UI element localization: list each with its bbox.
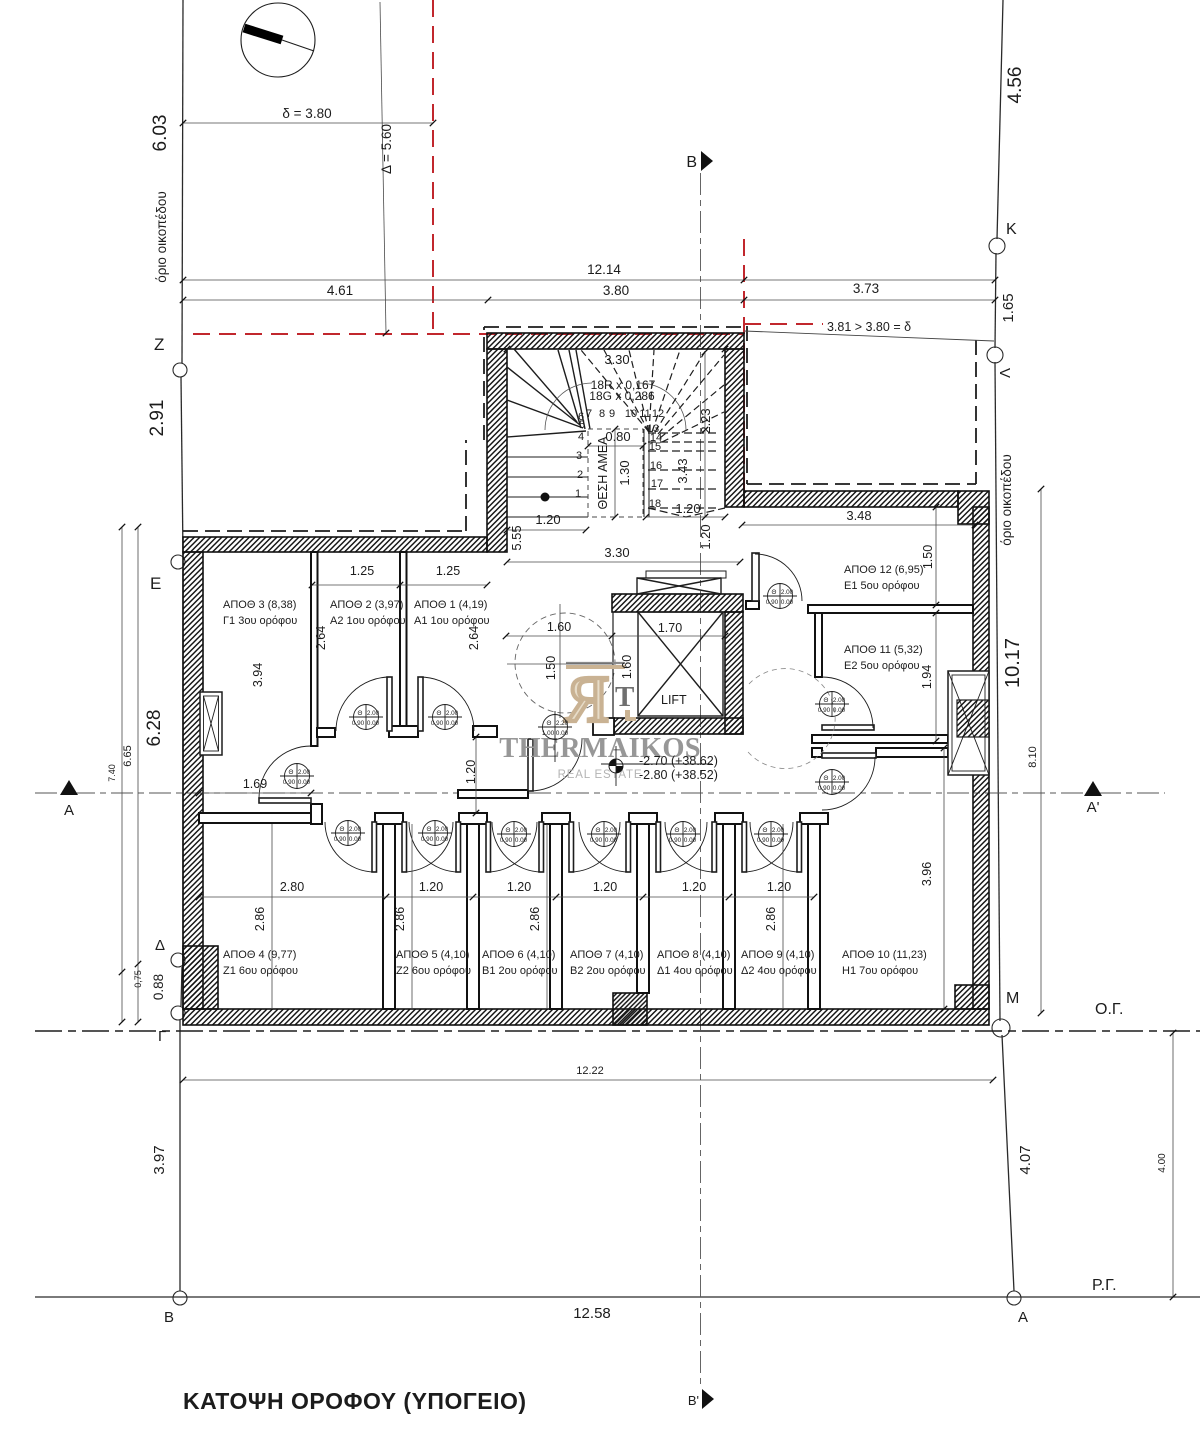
- svg-text:3: 3: [576, 450, 582, 462]
- svg-text:Θ: Θ: [437, 710, 442, 717]
- svg-text:0.90: 0.90: [421, 836, 434, 843]
- svg-text:ΑΠΟΘ 1 (4,19): ΑΠΟΘ 1 (4,19): [414, 599, 487, 611]
- svg-text:Δ2 4ου ορόφου: Δ2 4ου ορόφου: [741, 965, 817, 977]
- svg-text:Λ: Λ: [997, 368, 1014, 378]
- svg-text:Δ = 5.60: Δ = 5.60: [379, 124, 394, 174]
- svg-text:Β1 2ου ορόφου: Β1 2ου ορόφου: [482, 965, 558, 977]
- svg-text:Θ: Θ: [824, 775, 829, 782]
- svg-text:1.20: 1.20: [593, 880, 617, 894]
- svg-text:0,75: 0,75: [133, 970, 143, 988]
- svg-text:0.90: 0.90: [766, 599, 779, 606]
- svg-text:-2.70 (+38.62): -2.70 (+38.62): [639, 754, 718, 768]
- svg-text:0.00: 0.00: [772, 837, 785, 844]
- svg-text:7.40: 7.40: [107, 764, 117, 782]
- svg-text:0.00: 0.00: [684, 837, 697, 844]
- svg-text:3.30: 3.30: [604, 545, 629, 560]
- svg-text:4.07: 4.07: [1017, 1145, 1034, 1174]
- svg-text:0.00: 0.00: [436, 836, 449, 843]
- svg-text:Ζ2 6ου ορόφου: Ζ2 6ου ορόφου: [396, 965, 471, 977]
- svg-text:1.60: 1.60: [620, 655, 634, 679]
- svg-text:2.91: 2.91: [147, 400, 168, 437]
- svg-text:ΑΠΟΘ 6 (4,10): ΑΠΟΘ 6 (4,10): [482, 949, 555, 961]
- svg-text:0.00: 0.00: [298, 779, 311, 786]
- svg-text:4: 4: [578, 431, 584, 443]
- svg-text:Ρ.Γ.: Ρ.Γ.: [1092, 1277, 1117, 1294]
- svg-text:7: 7: [586, 408, 592, 420]
- svg-text:0.00: 0.00: [515, 837, 528, 844]
- svg-text:ΑΠΟΘ 2 (3,97): ΑΠΟΘ 2 (3,97): [330, 599, 403, 611]
- svg-text:0.90: 0.90: [669, 837, 682, 844]
- svg-text:6: 6: [578, 411, 584, 423]
- svg-text:E: E: [150, 574, 161, 593]
- svg-text:1.69: 1.69: [243, 777, 267, 791]
- svg-text:Θ: Θ: [596, 827, 601, 834]
- svg-text:0.90: 0.90: [352, 720, 365, 727]
- svg-text:10: 10: [625, 408, 637, 420]
- svg-text:0.90: 0.90: [818, 707, 831, 714]
- svg-text:3.97: 3.97: [151, 1145, 168, 1174]
- svg-text:ΑΠΟΘ 10 (11,23): ΑΠΟΘ 10 (11,23): [842, 949, 927, 961]
- svg-text:2.00: 2.00: [833, 697, 846, 704]
- svg-text:1.20: 1.20: [419, 880, 443, 894]
- svg-text:2.00: 2.00: [833, 775, 846, 782]
- svg-text:1.20: 1.20: [464, 760, 478, 784]
- svg-text:1.50: 1.50: [544, 656, 558, 680]
- svg-text:Δ1 4ου ορόφου: Δ1 4ου ορόφου: [657, 965, 733, 977]
- svg-text:όριο οικοπέδου: όριο οικοπέδου: [154, 191, 169, 283]
- svg-text:B: B: [686, 154, 697, 171]
- svg-text:1.20: 1.20: [767, 880, 791, 894]
- svg-text:A': A': [1087, 799, 1100, 816]
- svg-text:1.00: 1.00: [542, 730, 555, 737]
- svg-text:3.43: 3.43: [675, 458, 690, 483]
- svg-text:2.00: 2.00: [349, 826, 362, 833]
- svg-text:15: 15: [649, 441, 661, 453]
- svg-text:0.90: 0.90: [431, 720, 444, 727]
- svg-text:LIFT: LIFT: [661, 693, 687, 707]
- svg-text:1: 1: [575, 488, 581, 500]
- svg-text:1.20: 1.20: [682, 880, 706, 894]
- svg-text:1.94: 1.94: [920, 665, 934, 689]
- svg-text:0.90: 0.90: [334, 836, 347, 843]
- svg-text:1.60: 1.60: [547, 620, 571, 634]
- svg-text:4.00: 4.00: [1157, 1153, 1168, 1173]
- svg-text:-2.80 (+38.52): -2.80 (+38.52): [639, 768, 718, 782]
- svg-text:2.00: 2.00: [446, 710, 459, 717]
- svg-text:8: 8: [599, 408, 605, 420]
- svg-text:1.20: 1.20: [675, 501, 700, 516]
- svg-text:2.00: 2.00: [772, 827, 785, 834]
- svg-text:ΑΠΟΘ 4 (9,77): ΑΠΟΘ 4 (9,77): [223, 949, 296, 961]
- svg-text:T: T: [615, 681, 634, 713]
- svg-text:5.55: 5.55: [509, 525, 524, 550]
- svg-text:16: 16: [650, 460, 662, 472]
- svg-text:11: 11: [639, 408, 650, 420]
- svg-text:2.00: 2.00: [298, 769, 311, 776]
- svg-text:0.00: 0.00: [556, 730, 569, 737]
- svg-text:0.00: 0.00: [781, 599, 794, 606]
- svg-text:2.80: 2.80: [280, 880, 304, 894]
- svg-text:Θ: Θ: [763, 827, 768, 834]
- svg-text:0.00: 0.00: [833, 707, 846, 714]
- svg-text:2.86: 2.86: [393, 907, 407, 931]
- svg-text:9: 9: [609, 408, 615, 420]
- svg-text:1.20: 1.20: [535, 512, 560, 527]
- svg-text:0.90: 0.90: [757, 837, 770, 844]
- svg-text:0.90: 0.90: [500, 837, 513, 844]
- svg-text:2.00: 2.00: [515, 827, 528, 834]
- svg-text:2.86: 2.86: [528, 907, 542, 931]
- svg-text:Γ: Γ: [158, 1028, 166, 1045]
- svg-text:1.25: 1.25: [350, 564, 374, 578]
- svg-text:1.65: 1.65: [1000, 293, 1017, 322]
- svg-text:2.64: 2.64: [467, 626, 481, 650]
- svg-text:ΑΠΟΘ 9 (4,10): ΑΠΟΘ 9 (4,10): [741, 949, 814, 961]
- svg-text:2.23: 2.23: [698, 408, 713, 433]
- svg-text:REAL ESTATE: REAL ESTATE: [558, 769, 643, 781]
- svg-text:0.00: 0.00: [446, 720, 459, 727]
- svg-text:Γ1 3ου ορόφου: Γ1 3ου ορόφου: [223, 615, 297, 627]
- svg-text:Θ: Θ: [772, 589, 777, 596]
- svg-text:ΑΠΟΘ 5 (4,10): ΑΠΟΘ 5 (4,10): [396, 949, 469, 961]
- svg-text:Z: Z: [154, 335, 164, 354]
- svg-text:3.30: 3.30: [604, 352, 629, 367]
- svg-text:3.96: 3.96: [920, 862, 934, 886]
- svg-text:10.17: 10.17: [1002, 638, 1024, 688]
- svg-text:1.20: 1.20: [698, 524, 713, 549]
- svg-text:3.80: 3.80: [603, 283, 629, 298]
- svg-text:0.00: 0.00: [605, 837, 618, 844]
- svg-text:όριο οικοπέδου: όριο οικοπέδου: [999, 454, 1014, 546]
- svg-text:Ε2 5ου ορόφου: Ε2 5ου ορόφου: [844, 660, 920, 672]
- svg-text:Β': Β': [688, 1393, 699, 1408]
- svg-text:B: B: [164, 1309, 174, 1326]
- svg-text:Θ: Θ: [289, 769, 294, 776]
- svg-text:ΑΠΟΘ 11 (5,32): ΑΠΟΘ 11 (5,32): [844, 644, 923, 656]
- svg-text:0.00: 0.00: [367, 720, 380, 727]
- svg-text:2.86: 2.86: [764, 907, 778, 931]
- svg-text:0.90: 0.90: [818, 785, 831, 792]
- svg-text:A: A: [1018, 1309, 1028, 1326]
- svg-text:Θ: Θ: [547, 720, 552, 727]
- svg-text:Θ: Θ: [824, 697, 829, 704]
- svg-text:1.25: 1.25: [436, 564, 460, 578]
- svg-text:Η1 7ου ορόφου: Η1 7ου ορόφου: [842, 965, 918, 977]
- svg-text:6.03: 6.03: [150, 115, 171, 152]
- svg-text:Β2 2ου ορόφου: Β2 2ου ορόφου: [570, 965, 646, 977]
- svg-text:6.28: 6.28: [144, 710, 165, 747]
- svg-text:Θ: Θ: [427, 826, 432, 833]
- svg-text:δ = 3.80: δ = 3.80: [282, 106, 331, 121]
- svg-text:4.61: 4.61: [327, 283, 353, 298]
- svg-text:2: 2: [577, 469, 583, 481]
- svg-text:17: 17: [651, 478, 663, 490]
- svg-text:2.86: 2.86: [253, 907, 267, 931]
- svg-text:2.00: 2.00: [367, 710, 380, 717]
- svg-text:Θ: Θ: [340, 826, 345, 833]
- svg-text:18G x 0,286: 18G x 0,286: [589, 389, 655, 403]
- svg-text:12: 12: [652, 408, 664, 420]
- svg-text:2.00: 2.00: [684, 827, 697, 834]
- svg-text:2.00: 2.00: [781, 589, 794, 596]
- svg-text:0.90: 0.90: [590, 837, 603, 844]
- svg-text:6.65: 6.65: [122, 745, 134, 766]
- svg-text:18: 18: [649, 498, 661, 510]
- svg-text:Θ: Θ: [675, 827, 680, 834]
- svg-text:4.56: 4.56: [1005, 67, 1026, 104]
- svg-text:2.64: 2.64: [314, 626, 328, 650]
- svg-text:A: A: [64, 802, 74, 819]
- svg-text:M: M: [1006, 990, 1019, 1007]
- svg-text:1.30: 1.30: [617, 460, 632, 485]
- svg-text:Θ: Θ: [506, 827, 511, 834]
- svg-text:Θ: Θ: [358, 710, 363, 717]
- svg-text:2.20: 2.20: [556, 720, 569, 727]
- svg-text:8.10: 8.10: [1027, 746, 1039, 767]
- svg-text:ΘΕΣΗ ΑΜΕΑ: ΘΕΣΗ ΑΜΕΑ: [596, 436, 610, 510]
- svg-text:Ε1 5ου ορόφου: Ε1 5ου ορόφου: [844, 580, 920, 592]
- svg-text:0.88: 0.88: [151, 974, 166, 1000]
- svg-text:12.22: 12.22: [576, 1065, 604, 1077]
- svg-text:Ο.Γ.: Ο.Γ.: [1095, 1001, 1123, 1018]
- svg-text:Ζ1 6ου ορόφου: Ζ1 6ου ορόφου: [223, 965, 298, 977]
- svg-text:0.00: 0.00: [349, 836, 362, 843]
- svg-text:2.00: 2.00: [605, 827, 618, 834]
- svg-text:R: R: [565, 663, 609, 736]
- svg-text:ΑΠΟΘ 7 (4,10): ΑΠΟΘ 7 (4,10): [570, 949, 643, 961]
- svg-text:0.00: 0.00: [833, 785, 846, 792]
- svg-text:ΑΠΟΘ 8 (4,10): ΑΠΟΘ 8 (4,10): [657, 949, 730, 961]
- svg-text:Δ: Δ: [155, 937, 165, 954]
- svg-text:ΑΠΟΘ 3 (8,38): ΑΠΟΘ 3 (8,38): [223, 599, 296, 611]
- svg-text:3.94: 3.94: [251, 663, 265, 687]
- svg-text:2.00: 2.00: [436, 826, 449, 833]
- svg-text:3.73: 3.73: [853, 281, 879, 296]
- svg-text:12.58: 12.58: [573, 1305, 611, 1322]
- svg-text:1.70: 1.70: [658, 621, 682, 635]
- svg-text:12.14: 12.14: [587, 262, 621, 277]
- svg-text:3.81 > 3.80 = δ: 3.81 > 3.80 = δ: [827, 320, 911, 334]
- svg-text:1.20: 1.20: [507, 880, 531, 894]
- svg-text:ΚΑΤΟΨΗ ΟΡΟΦΟΥ (ΥΠΟΓΕΙΟ): ΚΑΤΟΨΗ ΟΡΟΦΟΥ (ΥΠΟΓΕΙΟ): [183, 1388, 527, 1414]
- svg-text:ΑΠΟΘ 12 (6,95): ΑΠΟΘ 12 (6,95): [844, 564, 923, 576]
- svg-text:K: K: [1006, 221, 1017, 238]
- svg-text:Α1 1ου ορόφου: Α1 1ου ορόφου: [414, 615, 490, 627]
- svg-text:3.48: 3.48: [846, 508, 871, 523]
- svg-text:Α2 1ου ορόφου: Α2 1ου ορόφου: [330, 615, 406, 627]
- svg-text:0.90: 0.90: [283, 779, 296, 786]
